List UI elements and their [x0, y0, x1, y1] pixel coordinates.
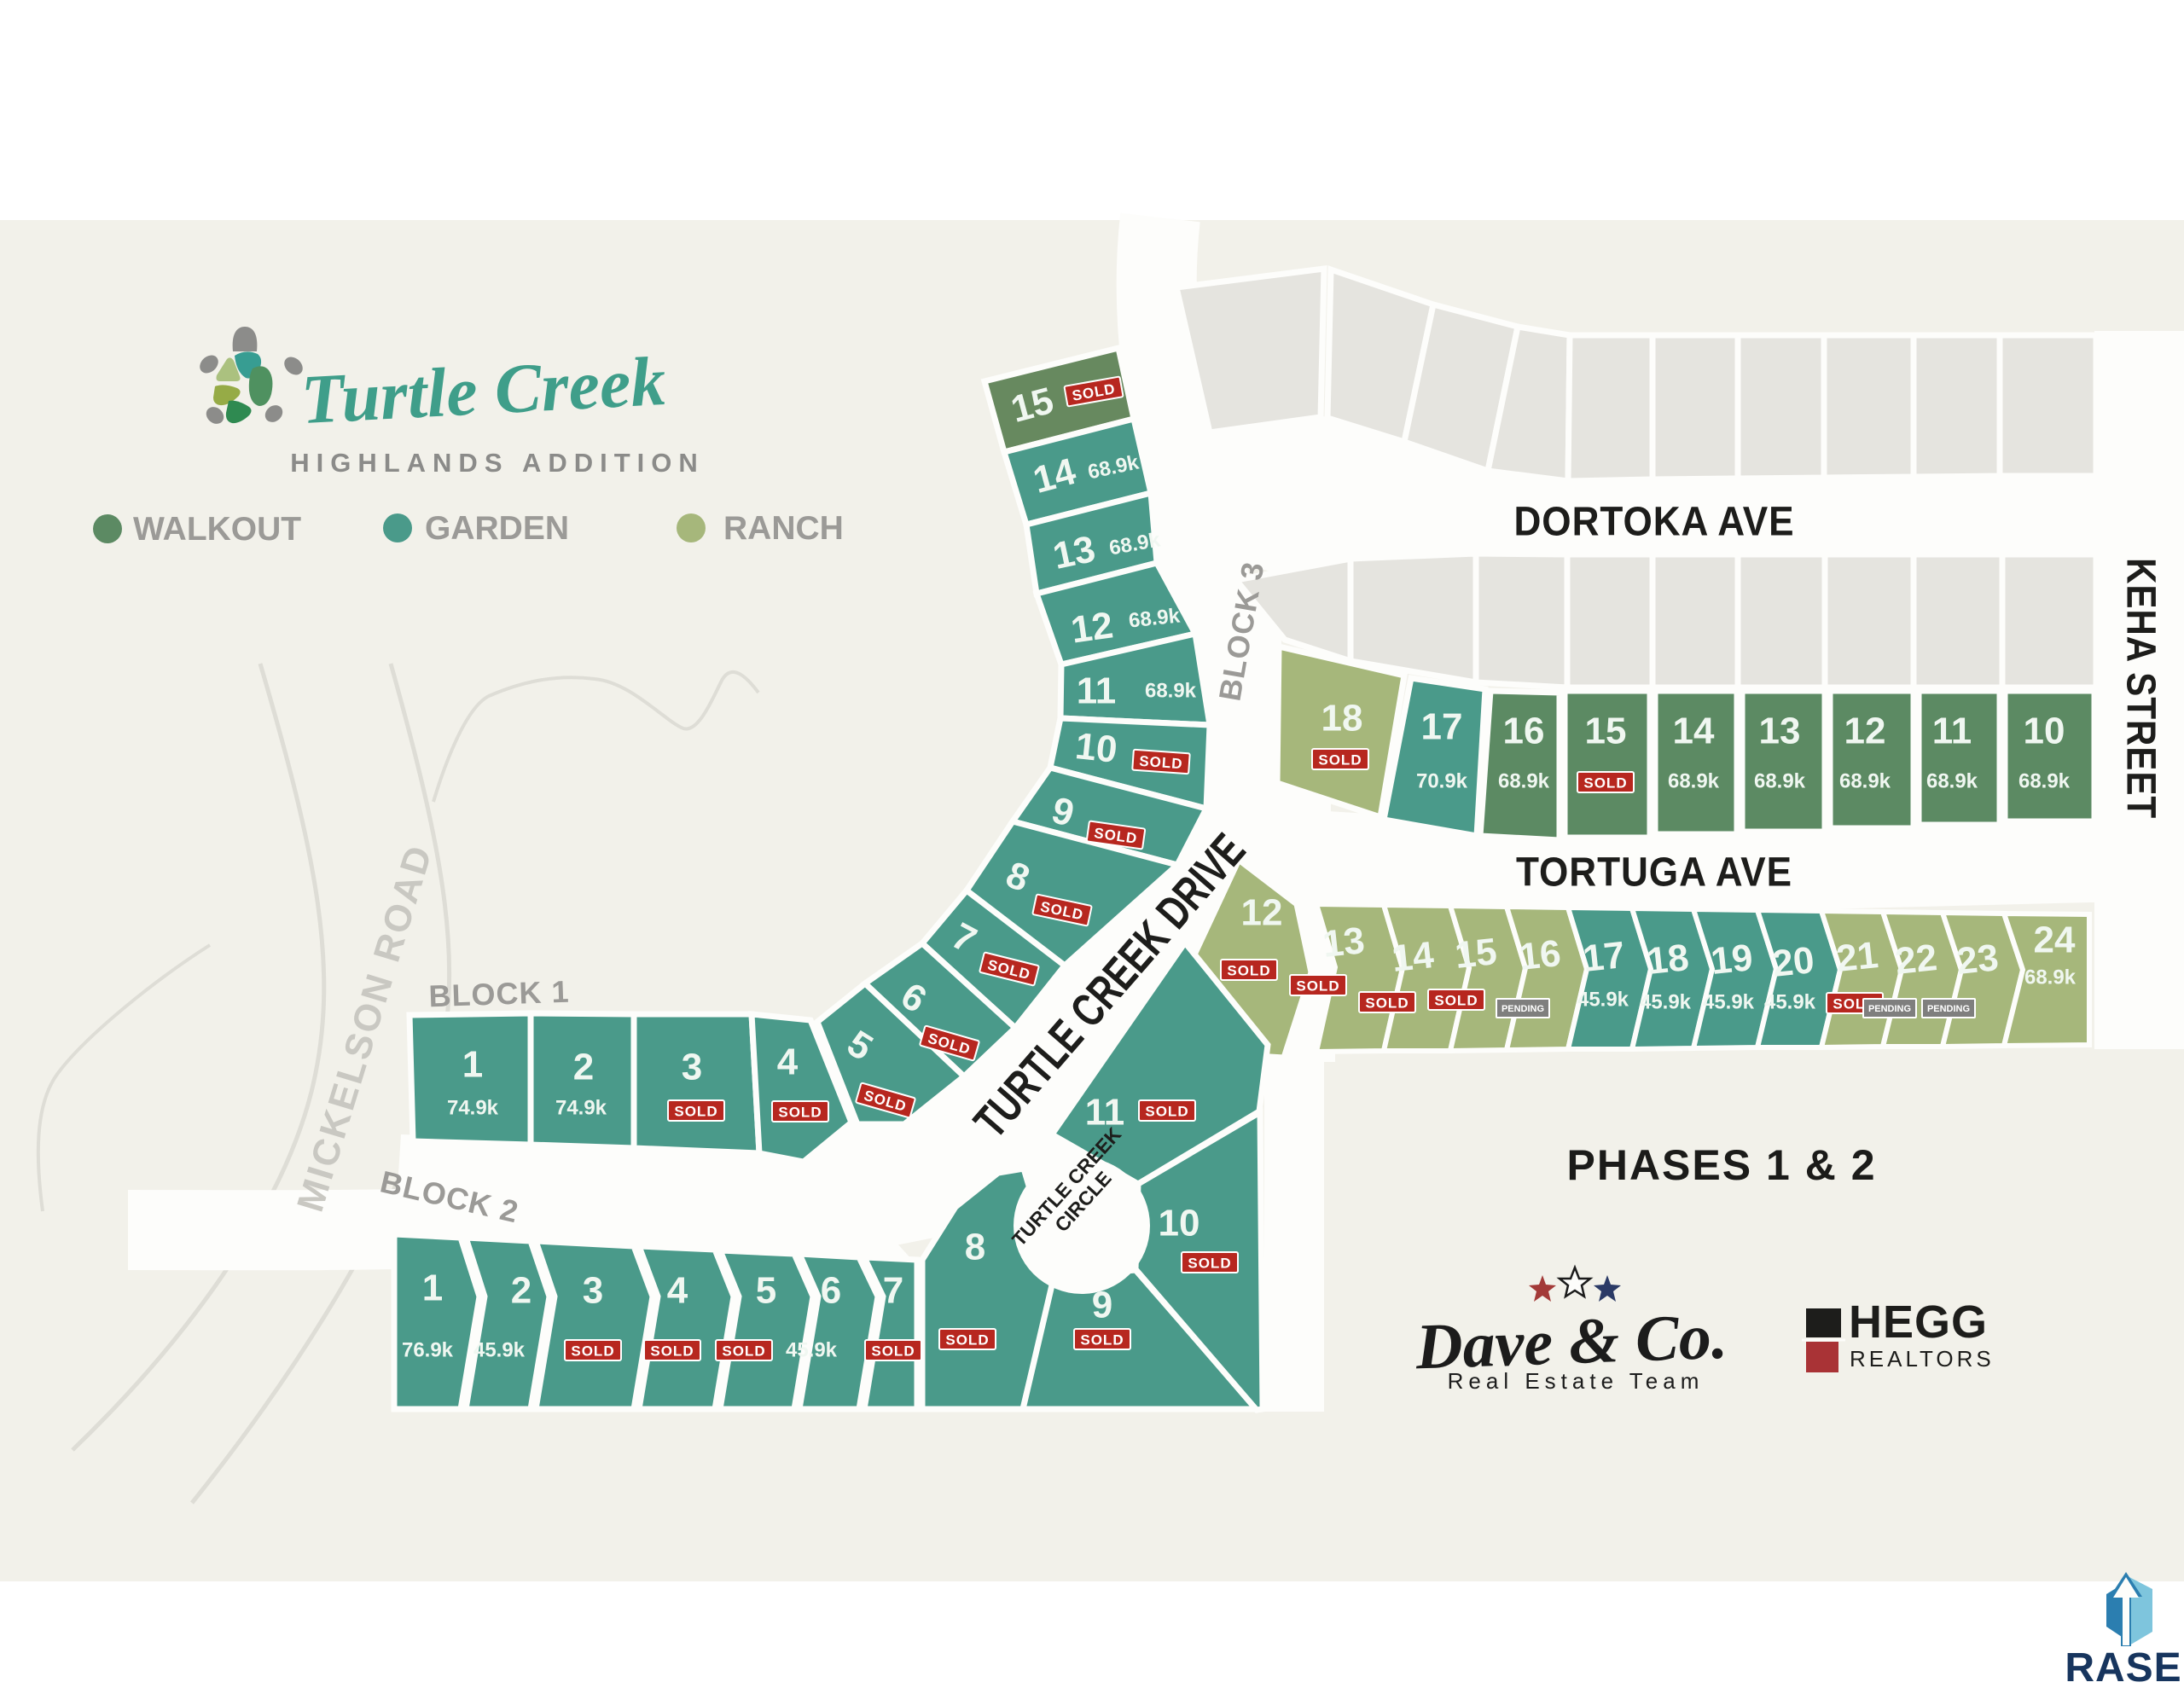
svg-text:SOLD: SOLD: [674, 1104, 717, 1120]
svg-text:70.9k: 70.9k: [1416, 770, 1468, 793]
svg-text:13: 13: [1321, 919, 1367, 966]
svg-text:SOLD: SOLD: [945, 1332, 989, 1349]
svg-text:RANCH: RANCH: [723, 510, 844, 547]
svg-text:SOLD: SOLD: [1318, 752, 1362, 769]
svg-text:2: 2: [511, 1270, 531, 1312]
svg-text:4: 4: [667, 1270, 688, 1312]
svg-text:45.9k: 45.9k: [1640, 991, 1692, 1014]
svg-text:12: 12: [1068, 604, 1115, 651]
svg-text:45.9k: 45.9k: [1764, 991, 1816, 1014]
svg-text:SOLD: SOLD: [571, 1343, 614, 1360]
svg-text:TORTUGA AVE: TORTUGA AVE: [1516, 849, 1792, 895]
svg-text:GARDEN: GARDEN: [425, 510, 569, 547]
svg-text:SOLD: SOLD: [1365, 995, 1409, 1012]
svg-text:5: 5: [756, 1270, 776, 1312]
svg-text:45.9k: 45.9k: [1577, 989, 1629, 1012]
svg-text:SOLD: SOLD: [1080, 1332, 1124, 1349]
svg-text:18: 18: [1645, 937, 1691, 983]
svg-text:PENDING: PENDING: [1868, 1004, 1911, 1014]
svg-text:7: 7: [883, 1270, 903, 1312]
svg-text:3: 3: [583, 1270, 603, 1312]
svg-text:1: 1: [422, 1267, 443, 1309]
svg-text:17: 17: [1421, 706, 1463, 748]
svg-text:74.9k: 74.9k: [447, 1097, 499, 1120]
svg-text:SOLD: SOLD: [722, 1343, 765, 1360]
svg-text:68.9k: 68.9k: [1754, 770, 1806, 793]
svg-text:RASE: RASE: [2065, 1645, 2181, 1688]
svg-text:PENDING: PENDING: [1501, 1004, 1544, 1014]
svg-text:22: 22: [1893, 937, 1939, 983]
svg-text:10: 10: [1159, 1203, 1200, 1244]
svg-text:4: 4: [777, 1041, 799, 1083]
svg-text:68.9k: 68.9k: [1926, 770, 1978, 793]
svg-text:PENDING: PENDING: [1927, 1004, 1970, 1014]
svg-text:10: 10: [1073, 725, 1119, 771]
svg-text:SOLD: SOLD: [871, 1343, 915, 1360]
svg-text:HEGG: HEGG: [1849, 1296, 1988, 1348]
svg-text:REALTORS: REALTORS: [1850, 1346, 1995, 1372]
svg-text:6: 6: [821, 1270, 841, 1312]
svg-text:SOLD: SOLD: [1139, 753, 1183, 773]
svg-text:15: 15: [1453, 931, 1499, 977]
svg-text:SOLD: SOLD: [1296, 978, 1339, 995]
svg-text:16: 16: [1517, 932, 1563, 978]
svg-text:18: 18: [1321, 698, 1363, 740]
svg-text:15: 15: [1585, 711, 1627, 752]
svg-text:68.9k: 68.9k: [1668, 770, 1720, 793]
svg-text:68.9k: 68.9k: [1145, 680, 1197, 703]
svg-text:17: 17: [1581, 934, 1627, 980]
svg-text:13: 13: [1049, 528, 1099, 577]
svg-text:DORTOKA AVE: DORTOKA AVE: [1513, 498, 1794, 544]
svg-text:1: 1: [462, 1044, 483, 1086]
svg-text:45.9k: 45.9k: [473, 1339, 526, 1362]
svg-text:WALKOUT: WALKOUT: [133, 511, 301, 548]
svg-text:SOLD: SOLD: [1188, 1256, 1231, 1272]
svg-text:23: 23: [1955, 937, 2001, 983]
svg-text:74.9k: 74.9k: [555, 1097, 607, 1120]
svg-text:SOLD: SOLD: [1583, 775, 1627, 792]
svg-text:HIGHLANDS ADDITION: HIGHLANDS ADDITION: [290, 448, 705, 478]
svg-text:45.9k: 45.9k: [1703, 991, 1755, 1014]
svg-text:19: 19: [1709, 937, 1755, 983]
svg-text:BLOCK 1: BLOCK 1: [428, 974, 570, 1014]
svg-text:68.9k: 68.9k: [2024, 966, 2077, 989]
svg-text:12: 12: [1844, 711, 1886, 752]
svg-text:21: 21: [1834, 934, 1880, 980]
svg-text:PHASES 1 & 2: PHASES 1 & 2: [1566, 1141, 1876, 1189]
svg-text:68.9k: 68.9k: [1839, 770, 1891, 793]
svg-text:14: 14: [1673, 711, 1715, 752]
svg-text:SOLD: SOLD: [1145, 1104, 1188, 1120]
svg-text:9: 9: [1092, 1285, 1112, 1326]
svg-text:16: 16: [1503, 711, 1545, 752]
svg-text:SOLD: SOLD: [1434, 993, 1478, 1009]
svg-text:SOLD: SOLD: [650, 1343, 694, 1360]
svg-text:11: 11: [1085, 1092, 1125, 1134]
svg-text:2: 2: [573, 1047, 594, 1088]
svg-text:11: 11: [1932, 711, 1972, 752]
svg-text:20: 20: [1770, 939, 1816, 985]
svg-text:10: 10: [2024, 711, 2065, 752]
svg-text:SOLD: SOLD: [778, 1105, 822, 1121]
svg-text:14: 14: [1390, 934, 1436, 980]
svg-text:12: 12: [1241, 892, 1283, 934]
svg-text:45.9k: 45.9k: [786, 1339, 838, 1362]
svg-text:76.9k: 76.9k: [402, 1339, 454, 1362]
svg-text:13: 13: [1759, 711, 1801, 752]
svg-text:8: 8: [965, 1227, 985, 1268]
svg-text:SOLD: SOLD: [1227, 963, 1270, 979]
svg-text:24: 24: [2034, 919, 2076, 961]
svg-text:68.9k: 68.9k: [2018, 770, 2071, 793]
svg-text:11: 11: [1077, 670, 1117, 712]
svg-text:Real Estate Team: Real Estate Team: [1448, 1368, 1705, 1394]
svg-text:3: 3: [682, 1047, 702, 1088]
svg-text:68.9k: 68.9k: [1498, 770, 1550, 793]
svg-text:KEHA STREET: KEHA STREET: [2118, 558, 2164, 819]
